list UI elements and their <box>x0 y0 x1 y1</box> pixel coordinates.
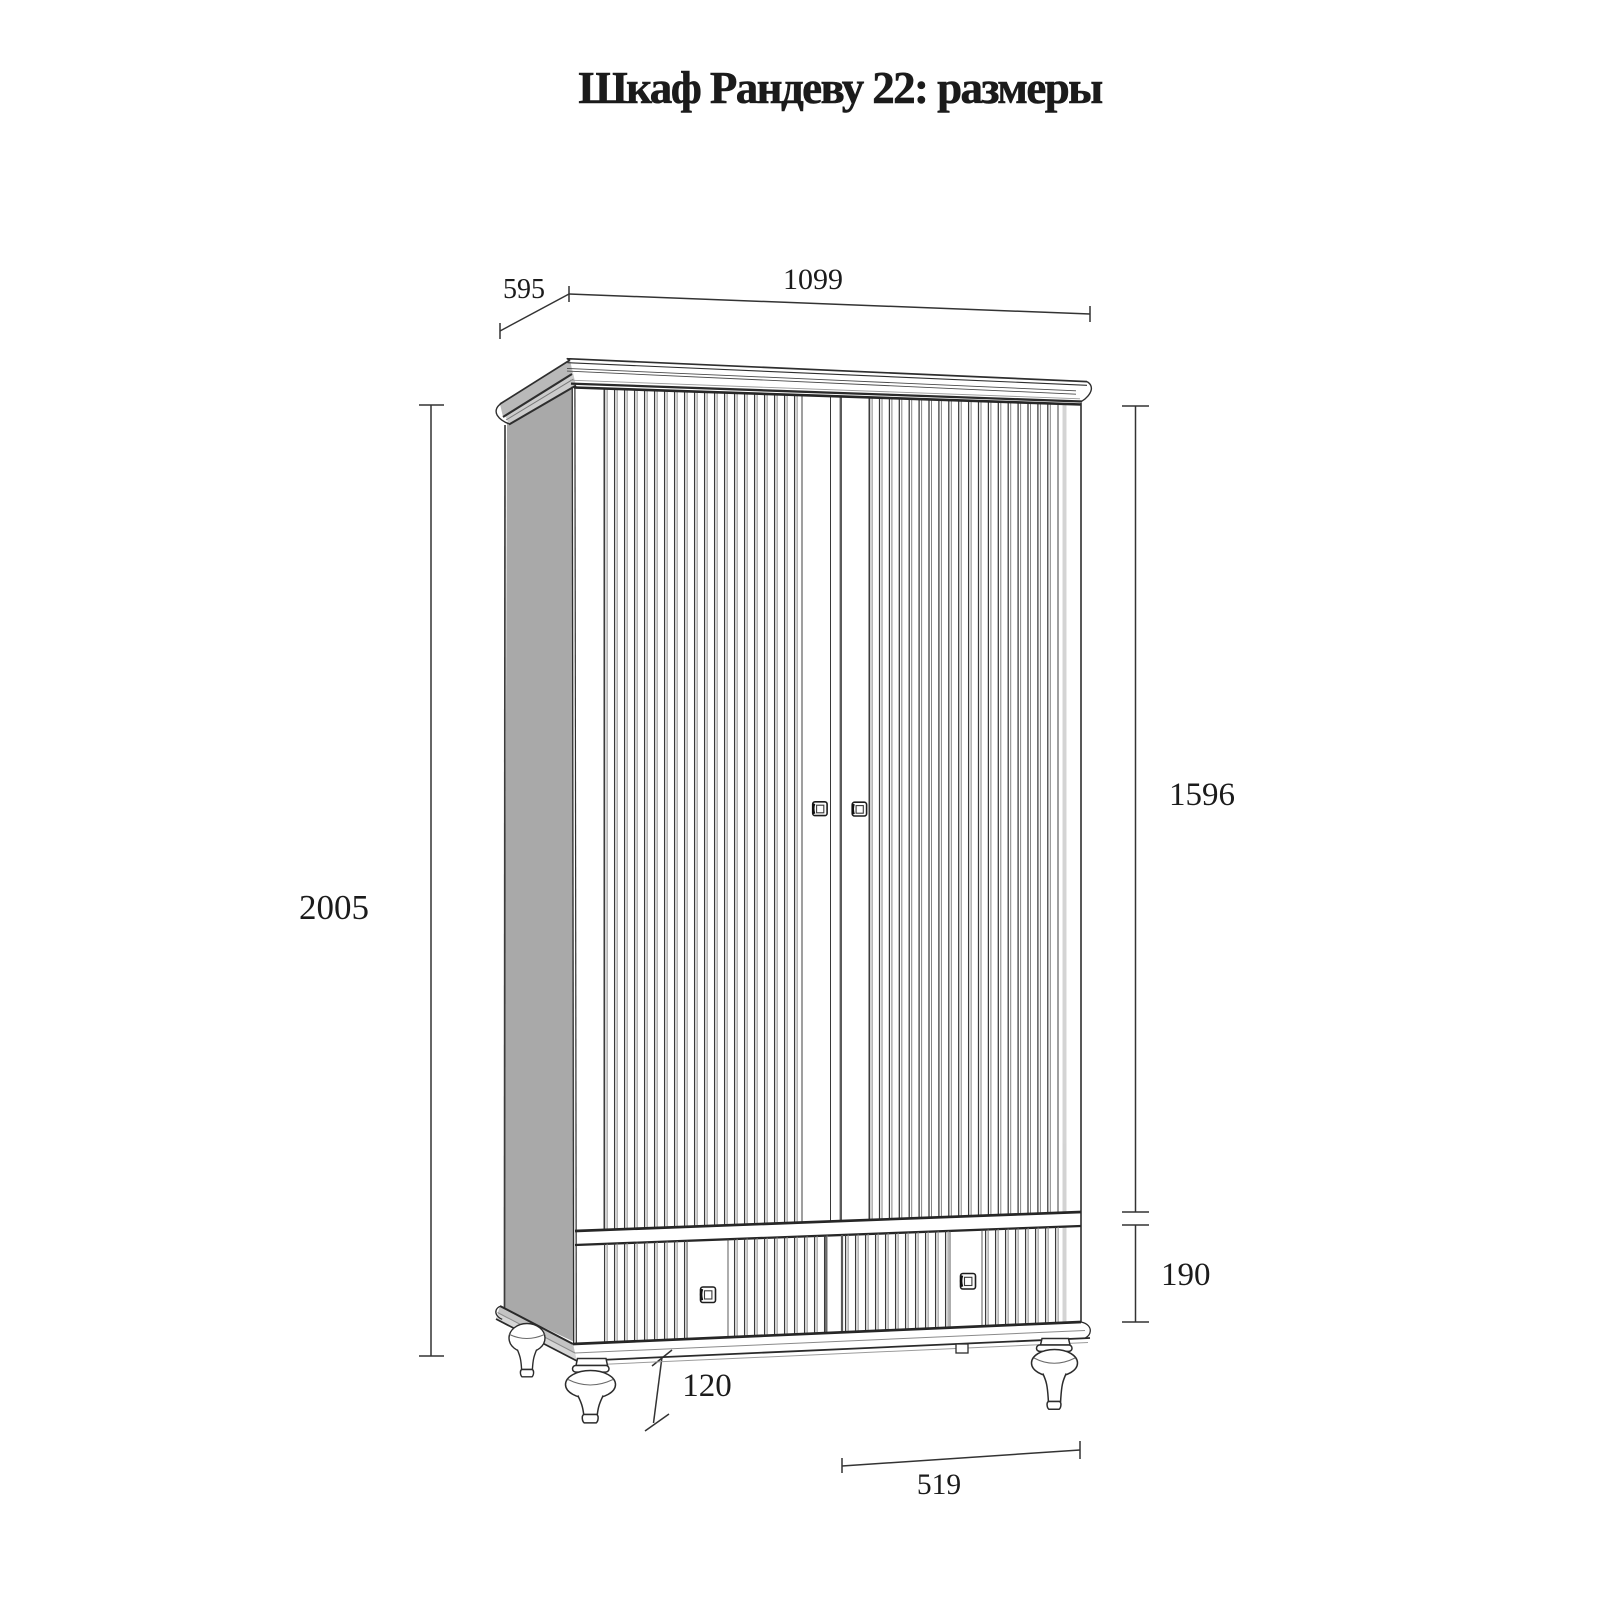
svg-text:Шкаф Рандеву 22: размеры: Шкаф Рандеву 22: размеры <box>578 63 1102 113</box>
svg-text:595: 595 <box>503 274 545 305</box>
svg-text:190: 190 <box>1161 1257 1211 1293</box>
svg-text:519: 519 <box>917 1469 961 1501</box>
svg-text:2005: 2005 <box>299 888 369 927</box>
svg-text:120: 120 <box>682 1368 732 1404</box>
svg-text:1099: 1099 <box>783 263 843 296</box>
svg-text:1596: 1596 <box>1169 777 1235 813</box>
